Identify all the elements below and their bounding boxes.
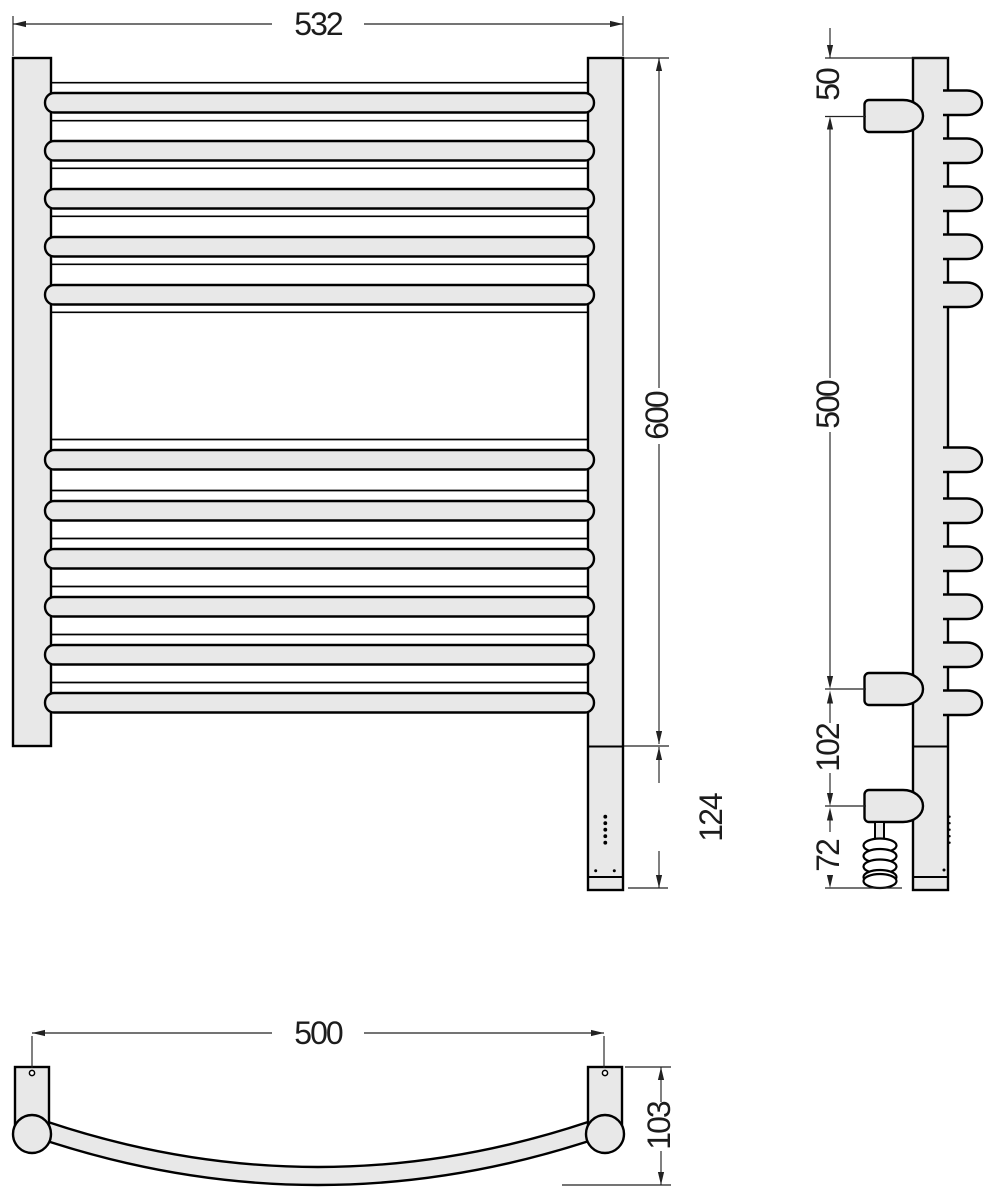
- right-post-section: [586, 1115, 624, 1153]
- spiral-cable: [864, 839, 897, 889]
- dim-label-front-width: 532: [294, 6, 343, 42]
- bar: [45, 141, 594, 161]
- dim-label-side-heater-to-bottom: 72: [810, 839, 846, 872]
- bar: [45, 549, 594, 569]
- dim-label-front-height: 600: [639, 391, 675, 440]
- bar-end: [943, 235, 982, 260]
- bar: [45, 450, 594, 470]
- heating-element: [865, 790, 924, 822]
- bar: [45, 597, 594, 617]
- drawing-canvas: 532 600 124: [0, 0, 996, 1200]
- bar-end: [943, 283, 982, 308]
- right-bracket-hole: [602, 1070, 607, 1075]
- bar-end: [943, 595, 982, 620]
- bar-end: [943, 187, 982, 212]
- lower-wall-bracket: [865, 673, 924, 705]
- dim-label-side-bracket-to-heater: 102: [810, 723, 846, 772]
- bar: [45, 285, 594, 305]
- bar: [45, 237, 594, 257]
- bar: [45, 93, 594, 113]
- upper-wall-bracket: [865, 100, 924, 132]
- bar: [45, 693, 594, 713]
- front-right-post: [588, 58, 623, 890]
- bar-end: [943, 448, 982, 473]
- left-post-section: [13, 1115, 51, 1153]
- bar: [45, 189, 594, 209]
- left-bracket-hole: [29, 1070, 34, 1075]
- dim-label-side-bracket-span: 500: [810, 380, 846, 429]
- technical-drawing: 532 600 124: [0, 0, 996, 1200]
- dim-label-bottom-depth: 103: [641, 1101, 677, 1150]
- dim-label-front-lower-section: 124: [693, 793, 729, 842]
- side-post: [913, 58, 948, 890]
- bar: [45, 645, 594, 665]
- bar: [45, 501, 594, 521]
- bar-end: [943, 643, 982, 668]
- bar-end: [943, 547, 982, 572]
- front-left-post: [13, 58, 51, 746]
- bar-end: [943, 91, 982, 116]
- dim-label-side-top-offset: 50: [810, 68, 846, 101]
- dim-label-bottom-mount-span: 500: [294, 1015, 343, 1051]
- bar-end: [943, 139, 982, 164]
- bar-end: [943, 499, 982, 524]
- bar-end: [943, 691, 982, 716]
